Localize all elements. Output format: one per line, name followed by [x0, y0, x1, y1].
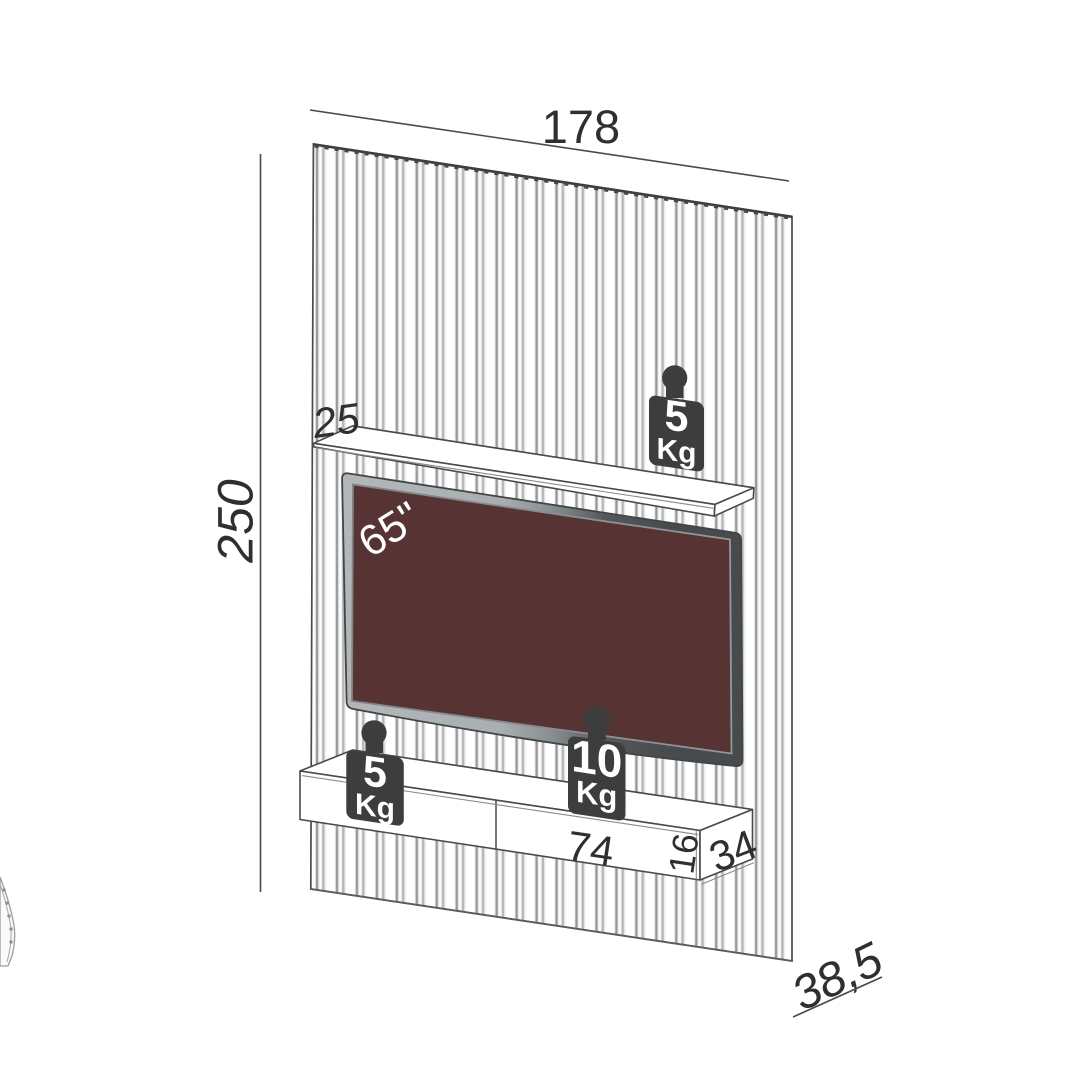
svg-text:Kg: Kg	[576, 774, 617, 815]
svg-text:250: 250	[208, 479, 264, 564]
svg-text:74: 74	[564, 822, 617, 875]
svg-text:Kg: Kg	[657, 432, 697, 471]
svg-text:178: 178	[542, 100, 620, 153]
svg-text:Kg: Kg	[355, 788, 395, 827]
svg-text:25: 25	[309, 394, 363, 447]
svg-text:38,5: 38,5	[784, 933, 891, 1022]
svg-text:16: 16	[660, 831, 706, 877]
